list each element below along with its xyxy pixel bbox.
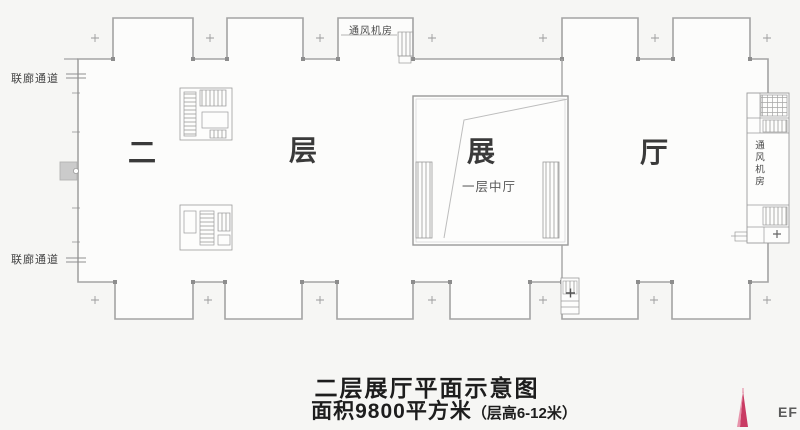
corridor-label-bottom: 联廊通道 xyxy=(11,251,59,267)
hall-char-zhan: 展 xyxy=(467,138,495,166)
escalator-left xyxy=(416,162,432,238)
stair-core-upper xyxy=(180,88,232,140)
area-text: 面积9800平方米 xyxy=(311,400,472,423)
atrium-note-label: 一层中厅 xyxy=(462,176,516,195)
escalator-right xyxy=(543,162,559,238)
hall-char-er: 二 xyxy=(128,139,156,167)
floor-height-note: （层高6-12米） xyxy=(472,405,577,422)
vent-room-top-label: 通风机房 xyxy=(349,22,393,37)
vent-room-right-label: 通风机房 xyxy=(751,140,765,188)
plan-subtitle: 面积9800平方米（层高6-12米） xyxy=(311,395,577,425)
floor-plan-page: 联廊通道 联廊通道 通风机房 通风机房 二 层 展 厅 一层中厅 二层展厅平面示… xyxy=(0,0,800,430)
watermark-logo-icon xyxy=(733,385,753,430)
stair-core-lower xyxy=(180,205,232,250)
corridor-label-top: 联廊通道 xyxy=(11,70,59,86)
hall-char-ting: 厅 xyxy=(640,139,668,167)
floor-plan-drawing xyxy=(0,0,800,430)
watermark-text: EF xyxy=(778,404,798,420)
bottom-stair xyxy=(561,278,579,314)
hall-char-ceng: 层 xyxy=(289,137,317,165)
